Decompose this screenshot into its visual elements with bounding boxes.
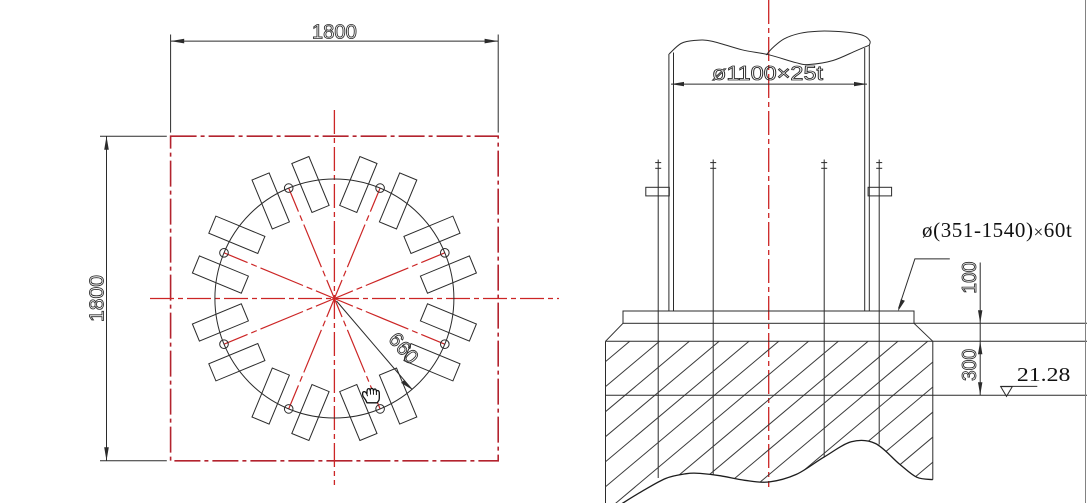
- svg-text:1800: 1800: [86, 275, 108, 322]
- svg-text:ø1100×25t: ø1100×25t: [712, 63, 824, 85]
- svg-text:300: 300: [959, 349, 981, 381]
- svg-text:ø(351-1540)×60t: ø(351-1540)×60t: [922, 218, 1072, 242]
- svg-text:1800: 1800: [312, 22, 357, 44]
- svg-text:100: 100: [959, 262, 981, 294]
- svg-text:21.28: 21.28: [1017, 364, 1071, 386]
